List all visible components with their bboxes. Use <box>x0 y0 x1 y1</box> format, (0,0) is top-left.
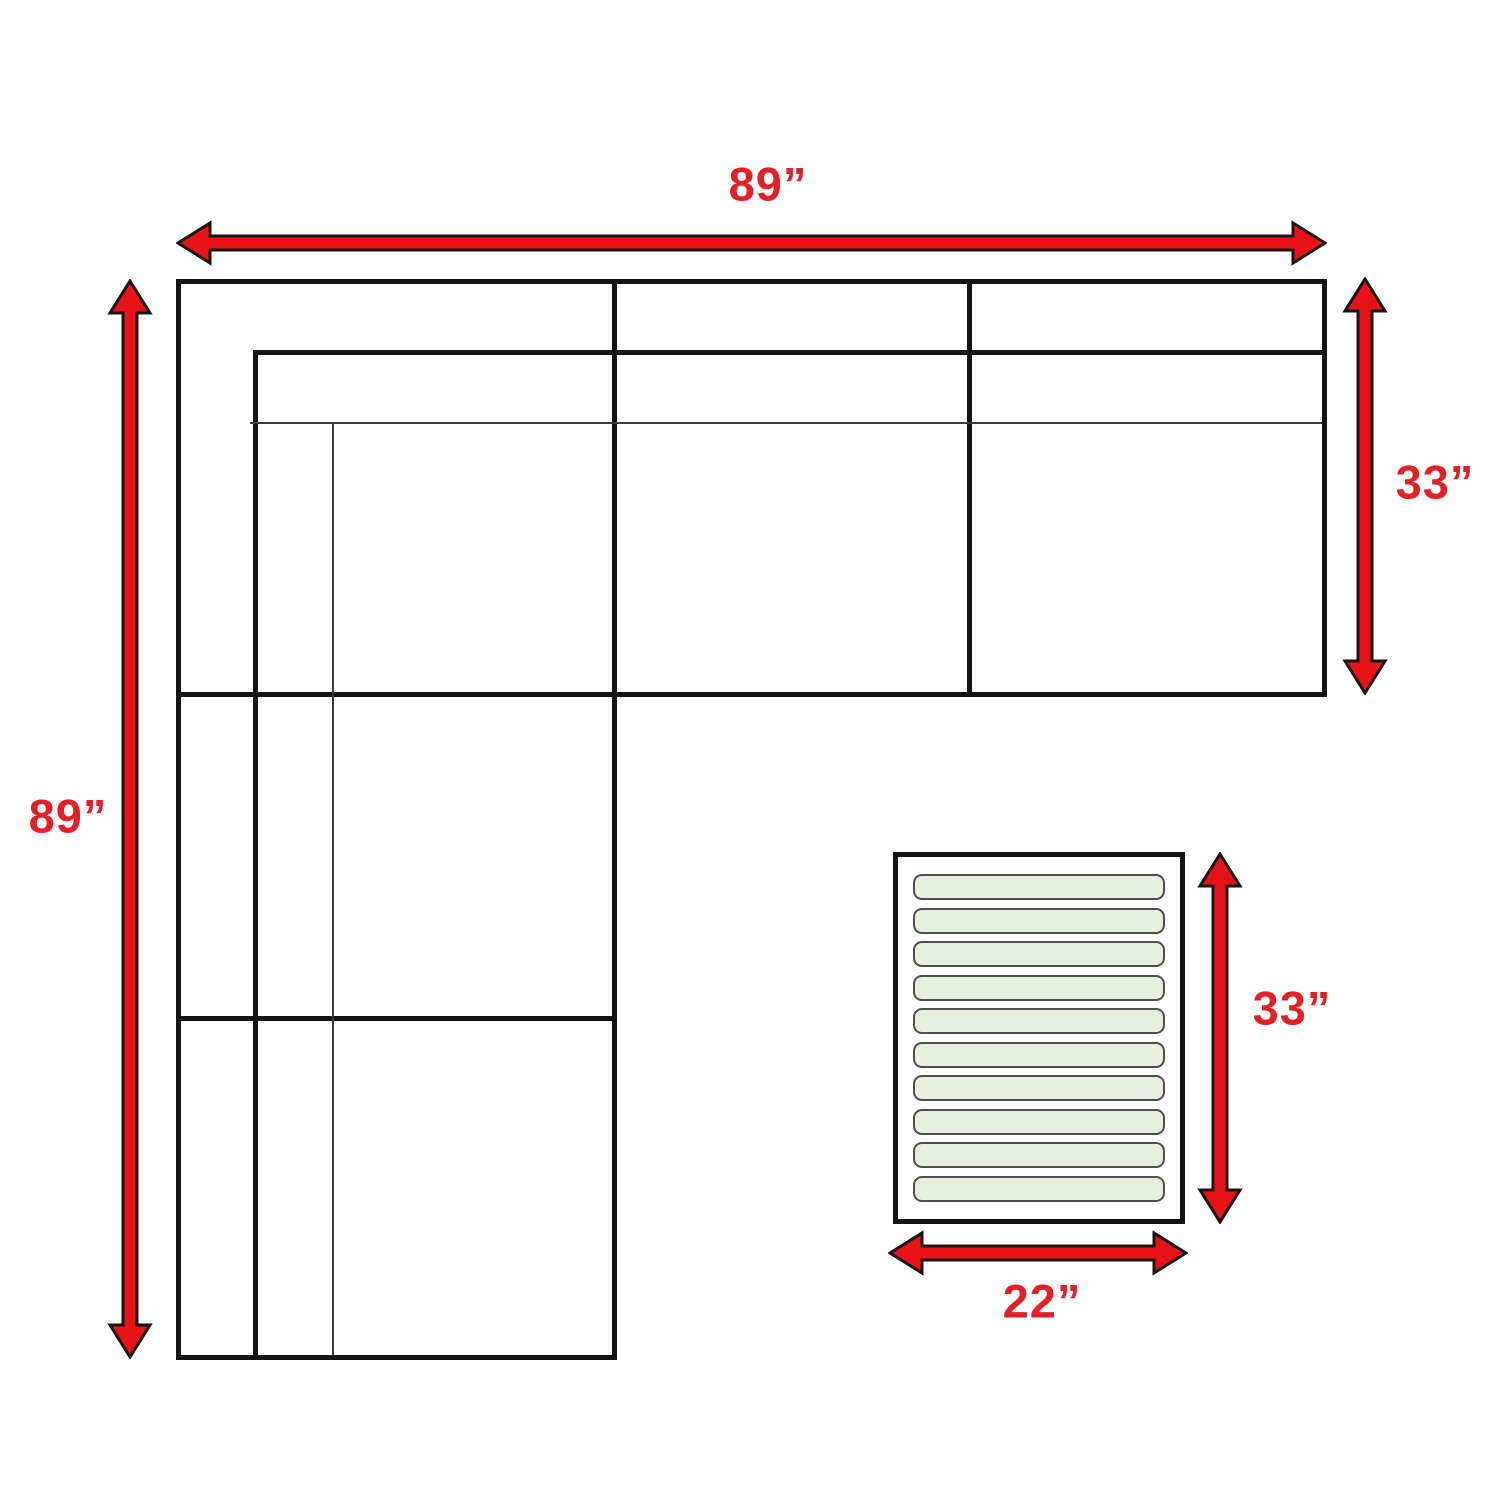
sofa-chaise-right-edge <box>612 279 617 1360</box>
sofa-seam-horizontal-mid <box>176 692 1327 697</box>
ottoman-slat <box>913 1008 1165 1034</box>
sofa-seam-vertical-right <box>967 279 972 697</box>
sofa-left-edge <box>176 279 181 1360</box>
dimension-diagram: 89” 89” 33” 33” 22” <box>0 0 1500 1500</box>
sofa-depth-label: 33” <box>1396 455 1475 510</box>
ottoman <box>893 852 1185 1224</box>
ottoman-width-label: 22” <box>1003 1274 1082 1329</box>
ottoman-slat <box>913 975 1165 1001</box>
ottoman-height-arrow <box>1197 852 1243 1224</box>
sofa-seam-horizontal-lower <box>176 1016 617 1021</box>
sofa-height-arrow <box>107 279 153 1359</box>
ottoman-width-arrow <box>888 1230 1188 1276</box>
sofa-backrest-line-vertical <box>253 350 258 1360</box>
sofa-cushion-line-horizontal <box>250 422 1322 424</box>
sofa-depth-arrow-shape <box>1345 279 1385 693</box>
sofa-right-edge <box>1322 279 1327 697</box>
sofa-depth-arrow <box>1342 277 1388 695</box>
sofa-width-label: 89” <box>729 157 808 212</box>
sofa-top-edge <box>176 279 1327 284</box>
ottoman-height-arrow-shape <box>1200 854 1240 1222</box>
sofa-height-label: 89” <box>29 789 108 844</box>
ottoman-slat <box>913 1075 1165 1101</box>
ottoman-width-arrow-shape <box>890 1233 1186 1273</box>
ottoman-slat <box>913 1142 1165 1168</box>
sofa-cushion-line-vertical <box>332 423 334 1355</box>
ottoman-slat <box>913 1109 1165 1135</box>
ottoman-slat <box>913 1042 1165 1068</box>
sofa-backrest-line-horizontal <box>253 350 1322 355</box>
ottoman-slat <box>913 874 1165 900</box>
ottoman-slat <box>913 908 1165 934</box>
ottoman-slat <box>913 941 1165 967</box>
ottoman-slat <box>913 1176 1165 1202</box>
ottoman-height-label: 33” <box>1253 981 1332 1036</box>
sofa-height-arrow-shape <box>110 281 150 1357</box>
sofa-width-arrow <box>176 220 1327 266</box>
sofa-bottom-edge <box>176 1355 617 1360</box>
sofa-width-arrow-shape <box>178 223 1325 263</box>
